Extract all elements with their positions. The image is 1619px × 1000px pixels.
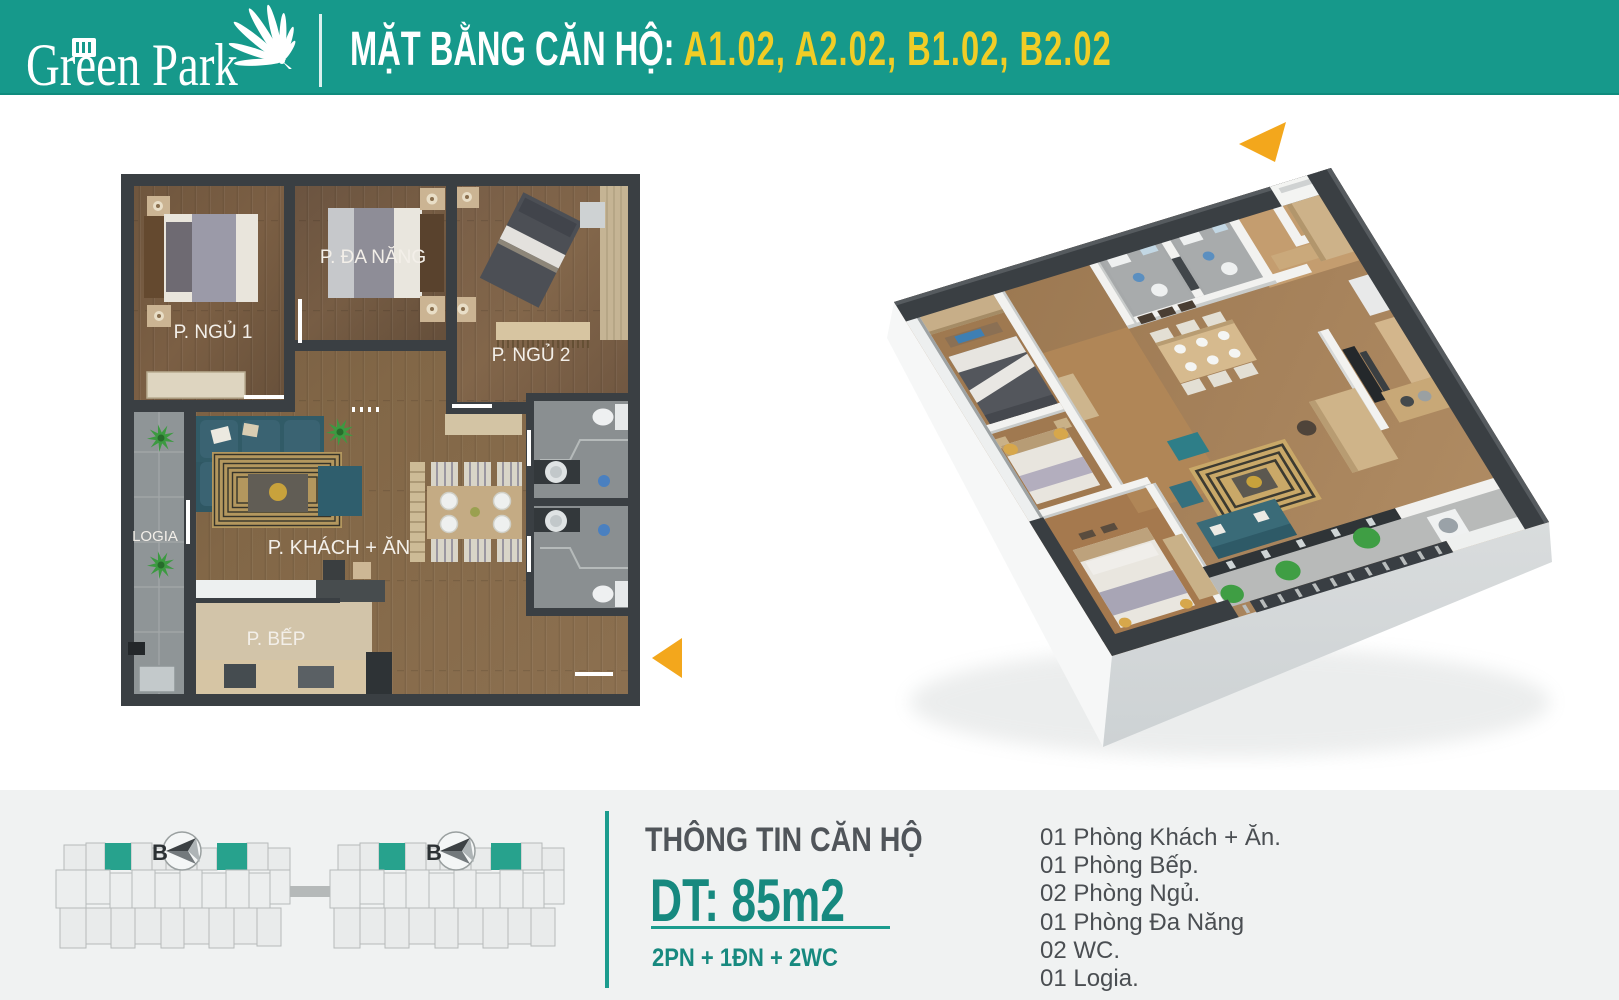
svg-text:P. BẾP: P. BẾP bbox=[247, 628, 306, 650]
svg-text:P. NGỦ 1: P. NGỦ 1 bbox=[174, 321, 253, 343]
svg-text:LOGIA: LOGIA bbox=[132, 528, 178, 545]
svg-text:P. NGỦ 2: P. NGỦ 2 bbox=[492, 344, 571, 366]
svg-text:P. KHÁCH + ĂN: P. KHÁCH + ĂN bbox=[268, 536, 410, 559]
svg-text:P. ĐA NĂNG: P. ĐA NĂNG bbox=[320, 247, 426, 268]
